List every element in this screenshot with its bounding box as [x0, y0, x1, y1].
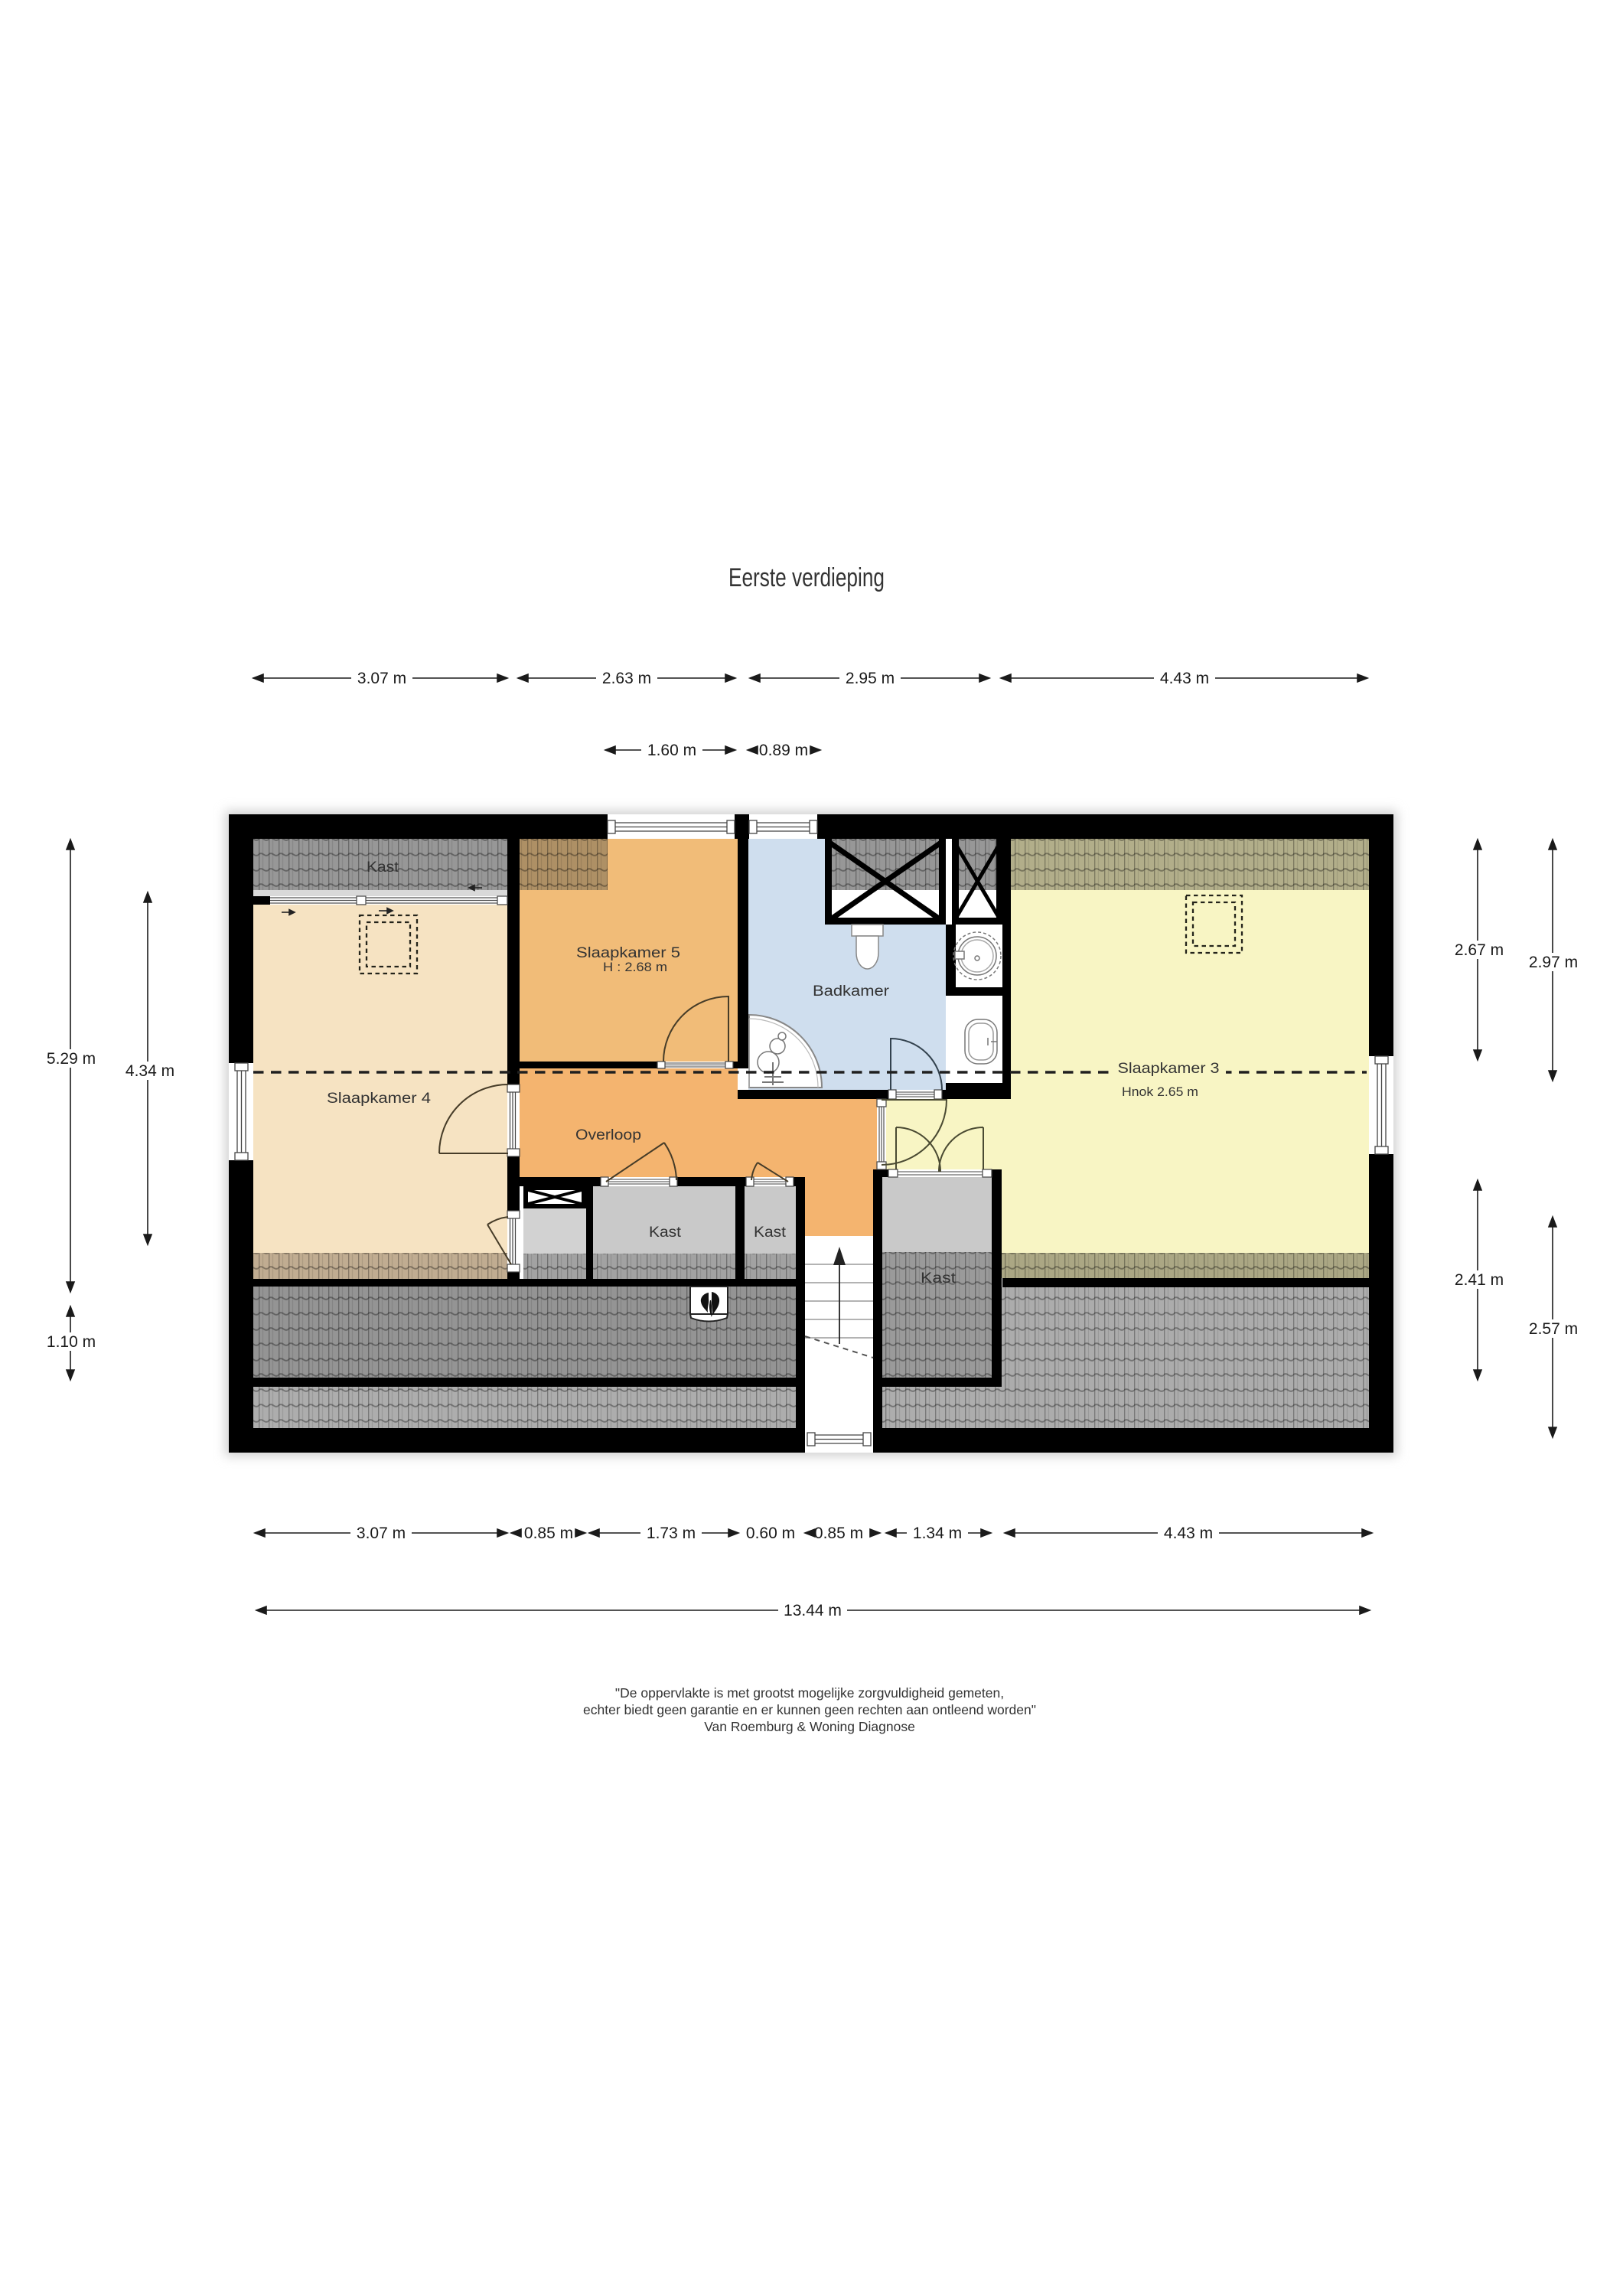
svg-text:Slaapkamer 3: Slaapkamer 3: [1118, 1061, 1220, 1077]
svg-text:"De oppervlakte is met grootst: "De oppervlakte is met grootst mogelijke…: [615, 1685, 1004, 1701]
svg-text:Kast: Kast: [921, 1270, 957, 1287]
svg-text:5.29 m: 5.29 m: [47, 1050, 96, 1068]
svg-text:4.34 m: 4.34 m: [125, 1062, 174, 1080]
svg-text:3.07 m: 3.07 m: [357, 1525, 406, 1542]
svg-text:2.57 m: 2.57 m: [1529, 1320, 1578, 1338]
svg-text:1.60 m: 1.60 m: [647, 742, 696, 759]
svg-text:13.44 m: 13.44 m: [784, 1602, 842, 1619]
svg-text:0.89 m: 0.89 m: [759, 742, 808, 759]
svg-text:1.34 m: 1.34 m: [913, 1525, 962, 1542]
svg-text:Badkamer: Badkamer: [813, 983, 890, 1000]
svg-text:Kast: Kast: [649, 1225, 682, 1241]
svg-text:3.07 m: 3.07 m: [357, 670, 406, 687]
svg-text:Kast: Kast: [754, 1225, 787, 1241]
svg-text:Eerste verdieping: Eerste verdieping: [728, 563, 885, 592]
svg-text:Overloop: Overloop: [575, 1127, 641, 1143]
svg-text:0.60 m: 0.60 m: [746, 1525, 795, 1542]
svg-text:2.63 m: 2.63 m: [602, 670, 651, 687]
svg-text:2.95 m: 2.95 m: [846, 670, 895, 687]
svg-text:2.67 m: 2.67 m: [1455, 941, 1504, 959]
svg-text:1.73 m: 1.73 m: [647, 1525, 696, 1542]
svg-text:echter biedt geen garantie en: echter biedt geen garantie en er kunnen …: [583, 1702, 1036, 1717]
svg-text:H : 2.68 m: H : 2.68 m: [603, 960, 667, 974]
svg-text:4.43 m: 4.43 m: [1164, 1525, 1213, 1542]
svg-text:1.10 m: 1.10 m: [47, 1333, 96, 1351]
svg-text:Slaapkamer 5: Slaapkamer 5: [576, 945, 680, 961]
svg-text:Slaapkamer 4: Slaapkamer 4: [327, 1091, 431, 1107]
svg-text:Kast: Kast: [367, 859, 399, 876]
svg-text:0.85 m: 0.85 m: [814, 1525, 863, 1542]
svg-text:0.85 m: 0.85 m: [524, 1525, 573, 1542]
svg-text:Van Roemburg & Woning Diagnose: Van Roemburg & Woning Diagnose: [704, 1719, 915, 1734]
svg-text:4.43 m: 4.43 m: [1160, 670, 1209, 687]
svg-text:Hnok 2.65 m: Hnok 2.65 m: [1122, 1084, 1198, 1099]
svg-text:2.97 m: 2.97 m: [1529, 954, 1578, 971]
svg-text:2.41 m: 2.41 m: [1455, 1271, 1504, 1289]
